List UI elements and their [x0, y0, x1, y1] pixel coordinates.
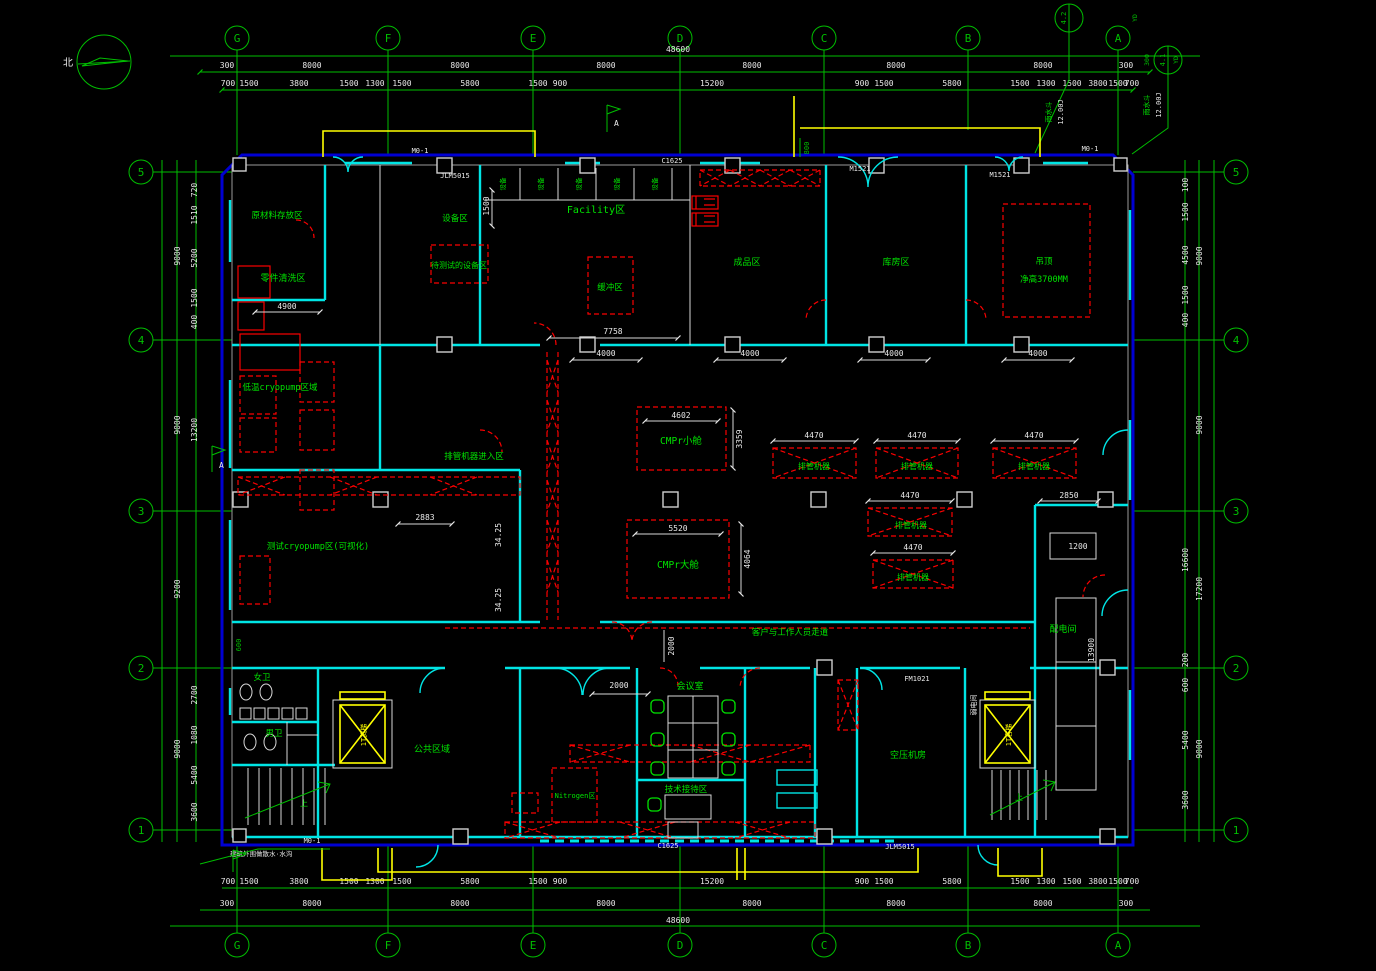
room-label-pipe-machine: 排管机器 [895, 520, 927, 530]
dim: 300 [220, 899, 235, 908]
grid-col-label: F [385, 939, 392, 952]
dim: 900 [855, 79, 870, 88]
dim: 4900 [277, 302, 296, 311]
dim: 1500 [339, 79, 358, 88]
dim: 720 [190, 183, 199, 198]
dim: 13900 [1087, 638, 1096, 662]
grid-col-label: E [530, 32, 537, 45]
room-labels: 原材料存放区 零件清洗区 设备区 待测试的设备区 Facility区 缓冲区 成… [243, 204, 1077, 800]
room-label-air-comp: 空压机房 [890, 749, 926, 761]
grid-row-label: 5 [1233, 166, 1240, 179]
dim: 1300 [365, 79, 384, 88]
room-label-reception: 技术接待区 [665, 784, 708, 795]
dim: 4064 [743, 549, 752, 568]
dim: 8000 [742, 899, 761, 908]
window-tag: C1625 [661, 157, 682, 165]
dim: 1200 [1068, 542, 1087, 551]
grid-col-label: A [1115, 32, 1122, 45]
dim: 5520 [668, 524, 687, 533]
dim: 1500 [190, 288, 199, 307]
dim: 300 [1143, 54, 1151, 66]
dim: 700 [221, 79, 236, 88]
dim: 4470 [903, 543, 922, 552]
dim: 600 [1181, 678, 1190, 693]
grid-bubbles-left: 5 4 3 2 1 [129, 160, 153, 842]
room-label-storage: 库房区 [882, 256, 909, 268]
grid-col-label: G [234, 939, 241, 952]
dim: 1500 [528, 877, 547, 886]
elevator-cargo-label: 1T货梯 [359, 724, 368, 746]
dim: 4000 [596, 349, 615, 358]
dim: 1500 [1181, 202, 1190, 221]
grid-row-label: 3 [138, 505, 145, 518]
dim: 34.25 [494, 588, 503, 612]
room-label-ceiling-height: 净高3700MM [1020, 274, 1068, 285]
dim: 9000 [173, 739, 182, 758]
dim: 5200 [190, 248, 199, 267]
callout-note: 雨水斗 [1142, 95, 1151, 116]
dim: 2000 [609, 681, 628, 690]
dim: 1500 [528, 79, 547, 88]
dims-right: 9000 9000 17200 9000 100 1500 4500 1500 … [1181, 178, 1204, 810]
dim: 8000 [1033, 61, 1052, 70]
door-tag: M1521 [989, 171, 1010, 179]
room-label-finished: 成品区 [733, 256, 760, 268]
dim: 1500 [1010, 877, 1029, 886]
cad-floorplan-viewport: 北 G F E D C B A G F E D C B A 5 4 3 2 1 … [0, 0, 1376, 971]
dim: 1500 [239, 79, 258, 88]
dim: 16600 [1181, 548, 1190, 572]
dim: 8000 [450, 61, 469, 70]
grid-row-label: 1 [138, 824, 145, 837]
section-label: A [219, 461, 224, 470]
dim: 1500 [239, 877, 258, 886]
dim: 1500 [482, 196, 491, 215]
dim: 1500 [392, 877, 411, 886]
window-tag: JLM5015 [440, 172, 470, 180]
corridor-label: 客户与工作人员走道 [752, 627, 829, 638]
stairs-up-label: 上 [300, 799, 308, 808]
dim: 1300 [1036, 79, 1055, 88]
dim: 1500 [1010, 79, 1029, 88]
dim: 5800 [942, 79, 961, 88]
grid-col-label: F [385, 32, 392, 45]
grid-row-label: 4 [138, 334, 145, 347]
dim: 1500 [1062, 877, 1081, 886]
grid-row-label: 3 [1233, 505, 1240, 518]
dim: 700 [1125, 877, 1140, 886]
grid-bubbles-right: 5 4 3 2 1 [1224, 160, 1248, 842]
dim: 8000 [886, 899, 905, 908]
dim: 8000 [450, 899, 469, 908]
grid-row-label: 1 [1233, 824, 1240, 837]
dim: 3600 [190, 802, 199, 821]
dim: 15200 [700, 79, 724, 88]
door-tag: M0-1 [304, 837, 321, 845]
dim: 4470 [900, 491, 919, 500]
room-label-wc-women: 女卫 [253, 672, 271, 683]
room-label-pipe-entry: 排管机器进入区 [444, 451, 504, 462]
dim: 13200 [190, 418, 199, 442]
room-label-weak-room: 弱电间 [969, 695, 978, 716]
grid-col-label: A [1115, 939, 1122, 952]
dim: 1500 [392, 79, 411, 88]
dim: 4500 [1181, 245, 1190, 264]
dim: 5800 [460, 877, 479, 886]
grid-col-label: D [677, 32, 684, 45]
room-label-pipe-machine: 排管机器 [1018, 461, 1050, 471]
dim: 700 [221, 877, 236, 886]
callout-id: YD [1172, 56, 1180, 64]
dim: 3800 [1088, 79, 1107, 88]
dim: 4470 [1024, 431, 1043, 440]
room-label-public: 公共区域 [414, 743, 450, 755]
grid-col-label: C [821, 32, 828, 45]
dim: 8000 [302, 899, 321, 908]
stairs-up-label: 上 [1015, 793, 1023, 802]
room-label-ceiling: 吊顶 [1035, 257, 1053, 267]
dim: 5400 [1181, 730, 1190, 749]
dim: 8000 [302, 61, 321, 70]
dim: 9000 [1195, 246, 1204, 265]
dim: 4000 [884, 349, 903, 358]
dim: 1500 [874, 79, 893, 88]
grid-col-label: B [965, 939, 972, 952]
dim: 2850 [1059, 491, 1078, 500]
room-label-pipe-machine: 排管机器 [798, 461, 830, 471]
dim: 200 [1181, 653, 1190, 668]
dim: 8000 [886, 61, 905, 70]
door-tag: M0-1 [412, 147, 429, 155]
dim: 3600 [1181, 790, 1190, 809]
toilet-fixtures [240, 684, 318, 765]
window-tag: C1625 [657, 842, 678, 850]
room-label-power-room: 配电间 [1049, 623, 1076, 635]
grid-col-label: D [677, 939, 684, 952]
grid-col-label: E [530, 939, 537, 952]
room-label-cryo-test: 测试cryopump区(可视化) [267, 541, 369, 552]
dim: 800 [803, 142, 811, 155]
dim: 1080 [190, 725, 199, 744]
callout-id: 4.1 [1159, 54, 1167, 67]
grid-row-label: 2 [138, 662, 145, 675]
door-tag: M1521 [849, 165, 870, 173]
dim: 3800 [289, 79, 308, 88]
dim: 3359 [735, 429, 744, 448]
callout-note: 雨水斗 [1044, 102, 1053, 123]
drain-callout-2: 4.1 YD 12.00J 雨水斗 300 [1132, 46, 1182, 154]
reception-desk [648, 795, 711, 838]
dim: 17200 [1195, 577, 1204, 601]
facility-cells: 设备 设备 设备 设备 设备 [485, 168, 820, 226]
dim: 5800 [942, 877, 961, 886]
elevator-passenger: 1T客梯 [980, 692, 1035, 768]
dim: 1500 [1181, 285, 1190, 304]
north-arrow-icon: 北 [63, 35, 131, 89]
dim: 3800 [1088, 877, 1107, 886]
room-label-pending-test: 待测试的设备区 [431, 260, 487, 270]
dim: 100 [1181, 178, 1190, 193]
dim: 900 [553, 877, 568, 886]
dim: 700 [1125, 79, 1140, 88]
dim: 1500 [1062, 79, 1081, 88]
dim: 2700 [190, 685, 199, 704]
dim: 5800 [460, 79, 479, 88]
grid-col-label: B [965, 32, 972, 45]
dim: 3800 [289, 877, 308, 886]
room-label-facility: Facility区 [567, 204, 625, 216]
room-label-raw-material: 原材料存放区 [251, 210, 303, 221]
dim: 300 [1119, 899, 1134, 908]
room-label-nitrogen: Nitrogen区 [555, 792, 596, 800]
room-label-pipe-machine: 排管机器 [897, 572, 929, 582]
dim: 1300 [365, 877, 384, 886]
grid-row-label: 5 [138, 166, 145, 179]
door-arcs-red [296, 220, 1105, 688]
dim: 400 [1181, 313, 1190, 328]
dim: 4000 [740, 349, 759, 358]
dim: 1500 [339, 877, 358, 886]
room-label-equipment: 设备区 [442, 213, 468, 224]
dim: 600 [235, 639, 243, 652]
equipment-cell-label: 设备 [612, 177, 621, 191]
dim: 8000 [596, 61, 615, 70]
dim: 1500 [874, 877, 893, 886]
floorplan-drawing: 北 G F E D C B A G F E D C B A 5 4 3 2 1 … [0, 0, 1376, 971]
dim: 1300 [1036, 877, 1055, 886]
window-tag: JLM5015 [885, 843, 915, 851]
grid-row-label: 2 [1233, 662, 1240, 675]
door-tag: M0-1 [1082, 145, 1099, 153]
equipment-cell-label: 设备 [574, 177, 583, 191]
grid-col-label: C [821, 939, 828, 952]
dim-overall-bottom: 48600 [666, 916, 690, 925]
room-label-buffer: 缓冲区 [597, 282, 623, 293]
dim: 900 [855, 877, 870, 886]
dim: 900 [553, 79, 568, 88]
callout-id: YD [1131, 14, 1139, 22]
room-label-wc-men: 男卫 [265, 729, 283, 739]
grid-col-label: G [234, 32, 241, 45]
room-label-cmpr-big: CMPr大舱 [657, 559, 699, 571]
dim: 300 [220, 61, 235, 70]
fire-door-tag: FM1021 [904, 675, 929, 683]
dim: 8000 [1033, 899, 1052, 908]
dim: 9000 [173, 415, 182, 434]
dim: 1510 [190, 205, 199, 224]
grid-bubbles-bottom: G F E D C B A [225, 933, 1130, 957]
dim: 2883 [415, 513, 434, 522]
callout-id: 4.2 [1060, 12, 1068, 25]
dim: 8000 [742, 61, 761, 70]
dim: 15200 [700, 877, 724, 886]
room-label-meeting: 会议室 [676, 680, 703, 692]
north-label: 北 [63, 57, 73, 69]
equipment-cell-label: 设备 [536, 177, 545, 191]
equipment-cell-label: 设备 [650, 177, 659, 191]
dim: 400 [190, 315, 199, 330]
stairs-right: 上 [990, 770, 1055, 820]
callout-elevation: 12.00J [1057, 99, 1065, 124]
dim: 4602 [671, 411, 690, 420]
room-label-parts-clean: 零件清洗区 [260, 272, 305, 284]
dim: 34.25 [494, 523, 503, 547]
section-label: A [614, 119, 619, 128]
dim: 9200 [173, 579, 182, 598]
callout-elevation: 12.00J [1155, 92, 1163, 117]
dim: 300 [1119, 61, 1134, 70]
dim: 4470 [804, 431, 823, 440]
equipment-cell-label: 设备 [498, 177, 507, 191]
dim: 9000 [173, 246, 182, 265]
workshop-tables [777, 770, 817, 808]
dim: 9000 [1195, 415, 1204, 434]
elevator-passenger-label: 1T客梯 [1004, 724, 1013, 746]
dim: 9000 [1195, 739, 1204, 758]
dim-overall-top: 48600 [666, 45, 690, 54]
room-label-pipe-machine: 排管机器 [901, 461, 933, 471]
dim: 5400 [190, 765, 199, 784]
dim: 4000 [1028, 349, 1047, 358]
dim: 7758 [603, 327, 622, 336]
conference-table [651, 696, 735, 778]
elevator-cargo: 1T货梯 [333, 692, 392, 768]
room-label-cryo-low: 低温cryopump区域 [243, 382, 318, 393]
dim: 4470 [907, 431, 926, 440]
grid-row-label: 4 [1233, 334, 1240, 347]
dim: 2000 [667, 636, 676, 655]
dim: 8000 [596, 899, 615, 908]
dims-interior: 4900 7758 4000 4000 4000 4000 4602 3359 … [235, 138, 1098, 694]
room-label-cmpr-small: CMPr小舱 [660, 435, 702, 447]
